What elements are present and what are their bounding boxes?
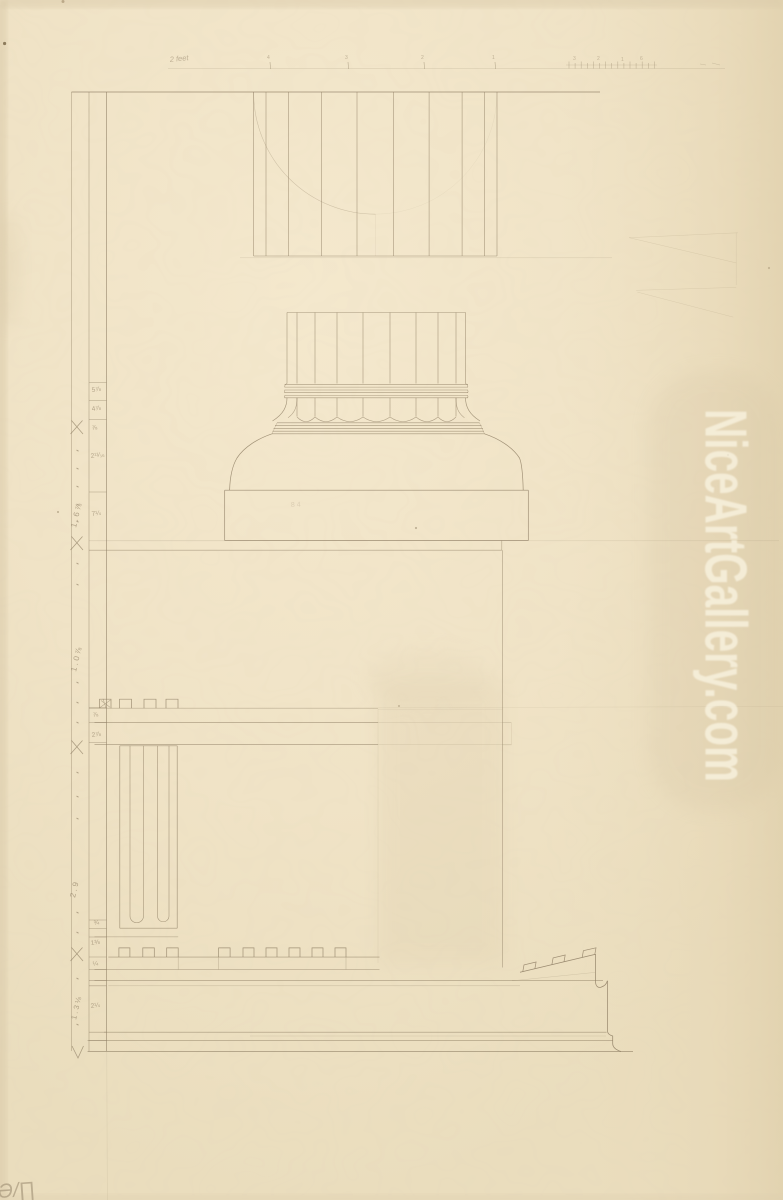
svg-text:2⅞: 2⅞ — [91, 731, 101, 739]
svg-text:2: 2 — [597, 56, 600, 62]
svg-text:1⅜: 1⅜ — [90, 939, 100, 947]
svg-text:1: 1 — [492, 55, 495, 61]
svg-text:3: 3 — [345, 55, 348, 61]
svg-text:2: 2 — [421, 55, 424, 61]
svg-text:5⅞: 5⅞ — [91, 386, 101, 394]
svg-text:Ə/∏: Ə/∏ — [0, 1178, 36, 1200]
svg-text:1: 1 — [621, 57, 624, 63]
svg-text:8 4: 8 4 — [291, 501, 301, 509]
svg-text:2¼: 2¼ — [90, 1002, 100, 1010]
svg-text:6: 6 — [640, 56, 643, 62]
svg-text:NiceArtGallery.com: NiceArtGallery.com — [693, 409, 759, 782]
svg-text:4: 4 — [267, 55, 270, 61]
svg-text:3: 3 — [573, 56, 576, 62]
svg-text:7¼: 7¼ — [91, 510, 101, 518]
svg-text:4⅞: 4⅞ — [91, 405, 101, 413]
